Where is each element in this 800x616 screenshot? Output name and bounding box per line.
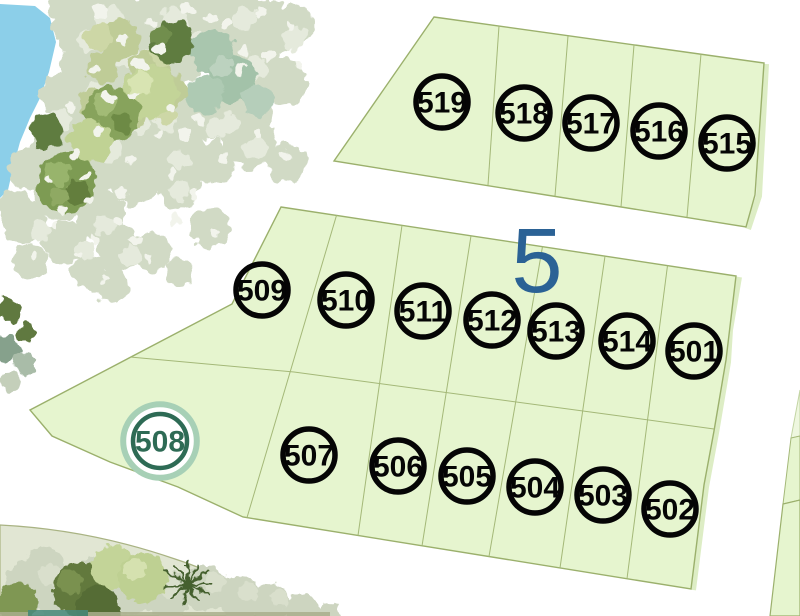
svg-text:5: 5	[511, 210, 562, 312]
svg-text:504: 504	[510, 472, 560, 505]
svg-text:503: 503	[578, 480, 628, 513]
svg-text:515: 515	[702, 128, 752, 161]
svg-text:516: 516	[634, 116, 684, 149]
svg-text:514: 514	[602, 326, 652, 359]
svg-text:512: 512	[467, 305, 517, 338]
svg-text:519: 519	[417, 87, 467, 120]
svg-text:513: 513	[531, 316, 581, 349]
svg-text:505: 505	[442, 461, 492, 494]
svg-text:506: 506	[373, 451, 423, 484]
svg-text:509: 509	[237, 275, 287, 308]
svg-text:507: 507	[284, 440, 334, 473]
svg-text:510: 510	[321, 285, 371, 318]
svg-text:501: 501	[669, 336, 719, 369]
svg-text:508: 508	[135, 426, 185, 459]
svg-text:517: 517	[566, 108, 616, 141]
svg-text:502: 502	[645, 494, 695, 527]
svg-text:511: 511	[399, 296, 447, 329]
svg-text:518: 518	[499, 98, 549, 131]
